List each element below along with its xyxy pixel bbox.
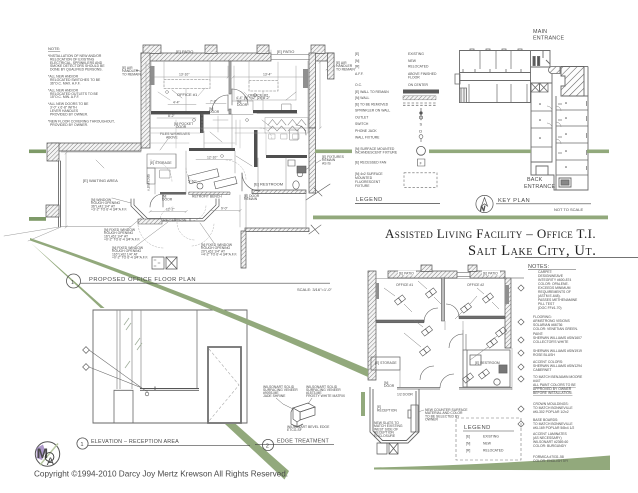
svg-text:SCALE: 3/16"=1'-0": SCALE: 3/16"=1'-0" <box>297 287 332 292</box>
svg-text:[E] PATIO: [E] PATIO <box>399 272 414 276</box>
svg-text:COLOR: BURGUNDY: COLOR: BURGUNDY <box>533 444 567 448</box>
svg-text:(DOC FF#1-70): (DOC FF#1-70) <box>538 306 562 310</box>
svg-text:PROVIDED BY OWNER.: PROVIDED BY OWNER. <box>50 123 88 127</box>
svg-text:ENTRANCE: ENTRANCE <box>533 36 564 42</box>
svg-text:RELOCATED: RELOCATED <box>483 449 504 453</box>
svg-text:NEW: NEW <box>483 442 492 446</box>
svg-text:[N] WALL: [N] WALL <box>355 96 369 100</box>
svg-text:Assisted Living Facility – Off: Assisted Living Facility – Office T.I. <box>385 226 596 241</box>
svg-text:NOTE:: NOTE: <box>48 46 60 51</box>
svg-text:JADE SHRINE: JADE SHRINE <box>263 394 286 398</box>
svg-text:SECURITY: SECURITY <box>146 174 150 192</box>
svg-text:EXISTING: EXISTING <box>408 52 424 56</box>
svg-text:ENCLOSURE: ENCLOSURE <box>374 434 396 438</box>
svg-text:[E] STORAGE: [E] STORAGE <box>150 161 172 165</box>
svg-text:SPRINKLER ON WALL: SPRINKLER ON WALL <box>355 109 390 113</box>
svg-text:[E] RECESSED FAN: [E] RECESSED FAN <box>355 161 387 165</box>
svg-text:DOOR: DOOR <box>176 125 187 129</box>
svg-text:12'-2": 12'-2" <box>166 208 175 212</box>
svg-text:SWITCH: SWITCH <box>355 122 369 126</box>
svg-text:+0'-2" TO 6'-4 3/4"A.F.F.: +0'-2" TO 6'-4 3/4"A.F.F. <box>112 256 148 260</box>
svg-text:DOOR: DOOR <box>162 198 173 202</box>
svg-text:12'-10": 12'-10" <box>207 156 218 160</box>
svg-text:OFFICE #2: OFFICE #2 <box>248 93 269 98</box>
svg-text:REMAIN: REMAIN <box>244 197 258 201</box>
svg-text:FIXTURE: FIXTURE <box>355 184 370 188</box>
svg-text:ELEVATION – RECEPTION AREA: ELEVATION – RECEPTION AREA <box>91 439 179 445</box>
svg-text:[E] PATIO: [E] PATIO <box>277 49 294 54</box>
svg-text:MAIN: MAIN <box>533 29 547 35</box>
svg-text:9'-0": 9'-0" <box>221 207 229 211</box>
svg-text:ETCG-SF: ETCG-SF <box>287 428 302 432</box>
svg-text:ENTRANCE: ENTRANCE <box>524 184 555 190</box>
svg-text:OFFICE #1: OFFICE #1 <box>396 283 413 287</box>
svg-text:COLOR: VENETIAN GREEN.: COLOR: VENETIAN GREEN. <box>533 327 578 331</box>
svg-text:15"O.C. MIN. A.F.F.: 15"O.C. MIN. A.F.F. <box>50 95 79 99</box>
svg-text:[R]: [R] <box>466 449 470 453</box>
svg-text:FROSTY WHITE MATRIX: FROSTY WHITE MATRIX <box>306 394 346 398</box>
svg-text:RELOCATED: RELOCATED <box>408 65 429 69</box>
svg-text:ON CENTER: ON CENTER <box>408 83 429 87</box>
svg-text:1: 1 <box>71 280 75 286</box>
svg-text:#KL302 POPLAR 1/2x2: #KL302 POPLAR 1/2x2 <box>533 410 569 414</box>
svg-text:[E] PATIO: [E] PATIO <box>483 272 498 276</box>
svg-text:NEW: NEW <box>408 59 417 63</box>
svg-text:PROVIDED BY OWNER.: PROVIDED BY OWNER. <box>50 112 88 116</box>
svg-text:7'-2": 7'-2" <box>210 100 218 104</box>
svg-text:COLLECTOR'S WHITE: COLLECTOR'S WHITE <box>533 340 569 344</box>
svg-text:[E]: [E] <box>355 52 359 56</box>
svg-text:DONE BY QUALIFIED PERSONS.: DONE BY QUALIFIED PERSONS. <box>50 68 103 72</box>
svg-text:DOOR: DOOR <box>237 103 248 107</box>
svg-text:AS IS: AS IS <box>322 161 331 165</box>
svg-text:Copyright ©1994-2010 Darcy Joy: Copyright ©1994-2010 Darcy Joy Mertz Kre… <box>34 470 288 479</box>
svg-text:PHONE JACK: PHONE JACK <box>355 129 377 133</box>
svg-text:ROSE BLUSH: ROSE BLUSH <box>533 353 555 357</box>
svg-text:S: S <box>420 122 423 127</box>
svg-text:WALL FIXTURE: WALL FIXTURE <box>355 136 380 140</box>
svg-text:OUTLET: OUTLET <box>355 116 368 120</box>
svg-text:#KL169 POPLAR 5/8x4 1/2: #KL169 POPLAR 5/8x4 1/2 <box>533 426 574 430</box>
svg-text:Salt Lake City, Ut.: Salt Lake City, Ut. <box>468 243 596 259</box>
svg-text:+4'-2" TO 6'-4 3/4"A.F.F.: +4'-2" TO 6'-4 3/4"A.F.F. <box>201 253 237 257</box>
svg-text:[E]: [E] <box>466 435 470 439</box>
svg-text:LEGEND: LEGEND <box>356 197 383 203</box>
svg-text:[N]: [N] <box>466 442 470 446</box>
svg-text:8'-2": 8'-2" <box>168 114 176 118</box>
svg-text:[R]: [R] <box>355 65 359 69</box>
svg-text:F: F <box>420 161 422 165</box>
svg-text:KEY PLAN: KEY PLAN <box>498 198 530 204</box>
svg-text:BEFORE INSTALLATION.: BEFORE INSTALLATION. <box>533 391 572 395</box>
svg-text:FLOOR: FLOOR <box>408 75 420 79</box>
svg-text:1: 1 <box>80 442 84 448</box>
svg-text:13'-10": 13'-10" <box>179 73 190 77</box>
svg-text:[E] TO BE REMOVED: [E] TO BE REMOVED <box>355 103 389 107</box>
svg-text:INCANDESCENT FIXTURE: INCANDESCENT FIXTURE <box>355 150 398 154</box>
svg-text:LEGEND: LEGEND <box>464 425 491 431</box>
svg-text:Ω: Ω <box>419 128 422 133</box>
svg-text:O.C.: O.C. <box>355 83 362 87</box>
svg-text:RECEPTION: RECEPTION <box>163 218 186 223</box>
svg-text:4'-4": 4'-4" <box>173 101 181 105</box>
svg-text:+3'-2" TO 6'-4 3/4"A.F.F.: +3'-2" TO 6'-4 3/4"A.F.F. <box>91 208 127 212</box>
svg-text:TO REMAIN: TO REMAIN <box>336 67 355 71</box>
svg-text:RECEPTION: RECEPTION <box>377 408 397 412</box>
svg-text:[E] RESTROOM: [E] RESTROOM <box>475 361 500 365</box>
svg-text:DOOR: DOOR <box>384 384 395 388</box>
svg-text:13'-4": 13'-4" <box>263 73 272 77</box>
svg-text:ABOVE: ABOVE <box>166 135 178 139</box>
svg-text:[E] RESTROOM: [E] RESTROOM <box>254 182 283 187</box>
svg-text:A.F.F.: A.F.F. <box>355 72 364 76</box>
svg-text:BACK: BACK <box>527 177 543 183</box>
svg-text:CABERNET: CABERNET <box>533 368 551 372</box>
svg-text:A: A <box>47 456 55 468</box>
svg-text:1/2 DOOR: 1/2 DOOR <box>397 393 413 397</box>
svg-text:COLOR: ENGLISH IVY: COLOR: ENGLISH IVY <box>533 459 569 463</box>
svg-text:PROPOSED OFFICE FLOOR PLAN: PROPOSED OFFICE FLOOR PLAN <box>89 277 196 283</box>
svg-text:EXISTING: EXISTING <box>483 435 499 439</box>
svg-text:5'-10": 5'-10" <box>188 180 197 184</box>
svg-text:OWNER: OWNER <box>425 418 439 422</box>
svg-text:OFFICE #2: OFFICE #2 <box>467 283 484 287</box>
svg-text:[E] STORAGE: [E] STORAGE <box>375 361 397 365</box>
svg-text:+0'-2" TO 6'-4 3/4"A.F.F.: +0'-2" TO 6'-4 3/4"A.F.F. <box>104 238 140 242</box>
svg-text:[E] WAITING AREA: [E] WAITING AREA <box>83 178 118 183</box>
svg-text:RETROFIT BENCH: RETROFIT BENCH <box>192 195 222 199</box>
svg-text:36"O.C. MAX. A.F.F.: 36"O.C. MAX. A.F.F. <box>50 81 80 85</box>
svg-text:TO REMAIN: TO REMAIN <box>122 72 141 76</box>
svg-text:DOOR: DOOR <box>209 110 220 114</box>
svg-text:EDGE TREATMENT: EDGE TREATMENT <box>277 439 330 445</box>
svg-text:NOT TO SCALE: NOT TO SCALE <box>554 207 583 212</box>
svg-text:[N]: [N] <box>355 59 359 63</box>
svg-text:[E] PATIO: [E] PATIO <box>176 49 193 54</box>
svg-text:[E] WALL TO REMAIN: [E] WALL TO REMAIN <box>355 90 389 94</box>
